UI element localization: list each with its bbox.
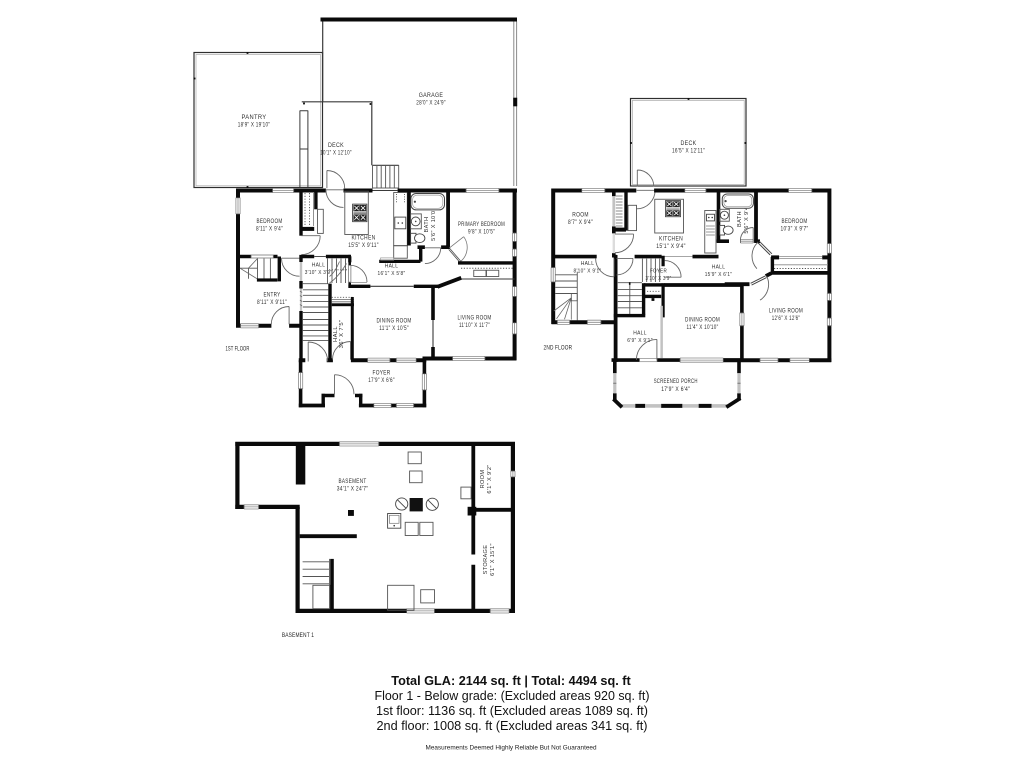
svg-text:9'8" X 10'5": 9'8" X 10'5" [468, 229, 495, 235]
svg-text:3'10" X 3'9": 3'10" X 3'9" [305, 270, 333, 276]
svg-text:LIVING ROOM: LIVING ROOM [458, 316, 492, 322]
svg-text:LIVING ROOM: LIVING ROOM [769, 309, 803, 315]
svg-text:2nd floor: 1008 sq. ft (Exclud: 2nd floor: 1008 sq. ft (Excluded areas 3… [377, 719, 648, 733]
svg-text:BATH: BATH [737, 211, 743, 227]
svg-text:GARAGE: GARAGE [419, 93, 444, 99]
svg-text:HALL: HALL [712, 265, 726, 271]
svg-text:FOYER: FOYER [650, 269, 667, 275]
svg-text:10'1" X 12'10": 10'1" X 12'10" [320, 150, 352, 156]
svg-text:17'9" X 6'4": 17'9" X 6'4" [661, 387, 690, 393]
svg-text:DINING ROOM: DINING ROOM [685, 318, 720, 324]
svg-text:ROOM: ROOM [572, 213, 589, 219]
svg-text:16'5" X 12'11": 16'5" X 12'11" [672, 148, 705, 154]
svg-text:15'9" X 6'1": 15'9" X 6'1" [705, 272, 733, 278]
svg-text:DECK: DECK [328, 143, 344, 149]
svg-text:HALL: HALL [312, 263, 326, 269]
svg-text:KITCHEN: KITCHEN [352, 236, 376, 242]
svg-text:2ND FLOOR: 2ND FLOOR [544, 345, 573, 352]
svg-text:8'11" X 9'11": 8'11" X 9'11" [257, 300, 287, 306]
svg-text:8'7" X 9'4": 8'7" X 9'4" [568, 220, 593, 226]
svg-text:ENTRY: ENTRY [264, 293, 281, 299]
svg-text:Floor 1 - Below grade: (Exclud: Floor 1 - Below grade: (Excluded areas 9… [375, 689, 650, 703]
svg-text:PANTRY: PANTRY [242, 115, 267, 121]
svg-text:17'9" X 6'6": 17'9" X 6'6" [368, 378, 395, 384]
svg-text:Measurements Deemed Highly Rel: Measurements Deemed Highly Reliable But … [426, 745, 597, 752]
svg-text:HALL: HALL [385, 264, 399, 270]
svg-text:KITCHEN: KITCHEN [659, 237, 683, 243]
svg-text:HALL: HALL [581, 261, 595, 267]
svg-text:PRIMARY BEDROOM: PRIMARY BEDROOM [458, 222, 505, 228]
svg-text:36" X 7'5": 36" X 7'5" [339, 320, 345, 349]
svg-text:BEDROOM: BEDROOM [257, 219, 283, 225]
svg-text:11'4" X 10'10": 11'4" X 10'10" [687, 325, 719, 331]
svg-text:1ST FLOOR: 1ST FLOOR [226, 346, 250, 353]
svg-text:15'5" X 9'11": 15'5" X 9'11" [348, 243, 379, 249]
svg-text:DECK: DECK [681, 141, 697, 147]
svg-text:FOYER: FOYER [373, 371, 391, 377]
svg-text:SCREENED PORCH: SCREENED PORCH [654, 379, 698, 385]
svg-text:28'0" X 24'9": 28'0" X 24'9" [416, 100, 446, 106]
svg-text:8'11" X 9'4": 8'11" X 9'4" [256, 226, 283, 232]
svg-text:15'1" X 9'4": 15'1" X 9'4" [656, 244, 686, 250]
svg-text:6'1" X 15'1": 6'1" X 15'1" [490, 543, 496, 576]
svg-text:BASEMENT: BASEMENT [339, 479, 367, 485]
svg-text:BEDROOM: BEDROOM [782, 219, 808, 225]
svg-text:ROOM: ROOM [480, 470, 486, 489]
svg-text:6'1" X 9'2": 6'1" X 9'2" [487, 464, 493, 493]
svg-text:DINING ROOM: DINING ROOM [377, 319, 412, 325]
svg-text:18'9" X 19'10": 18'9" X 19'10" [238, 122, 271, 128]
svg-text:1st floor: 1136 sq. ft (Exclud: 1st floor: 1136 sq. ft (Excluded areas 1… [376, 704, 648, 718]
svg-text:Total GLA: 2144 sq. ft | Total: Total GLA: 2144 sq. ft | Total: 4494 sq.… [391, 673, 631, 688]
svg-text:BATH: BATH [424, 217, 430, 233]
svg-text:11'1" X 10'5": 11'1" X 10'5" [379, 326, 409, 332]
svg-text:5'6" X 10'0": 5'6" X 10'0" [431, 208, 437, 241]
svg-text:12'6" X 12'6": 12'6" X 12'6" [772, 316, 801, 322]
svg-text:BASEMENT 1: BASEMENT 1 [282, 632, 315, 639]
svg-text:34'1" X 24'7": 34'1" X 24'7" [337, 486, 369, 492]
svg-text:STORAGE: STORAGE [483, 545, 489, 575]
svg-text:HALL: HALL [633, 331, 647, 337]
svg-text:10'3" X 9'7": 10'3" X 9'7" [781, 226, 809, 232]
svg-text:16'1" X 5'8": 16'1" X 5'8" [378, 271, 406, 277]
svg-text:11'10" X 11'7": 11'10" X 11'7" [459, 323, 490, 329]
